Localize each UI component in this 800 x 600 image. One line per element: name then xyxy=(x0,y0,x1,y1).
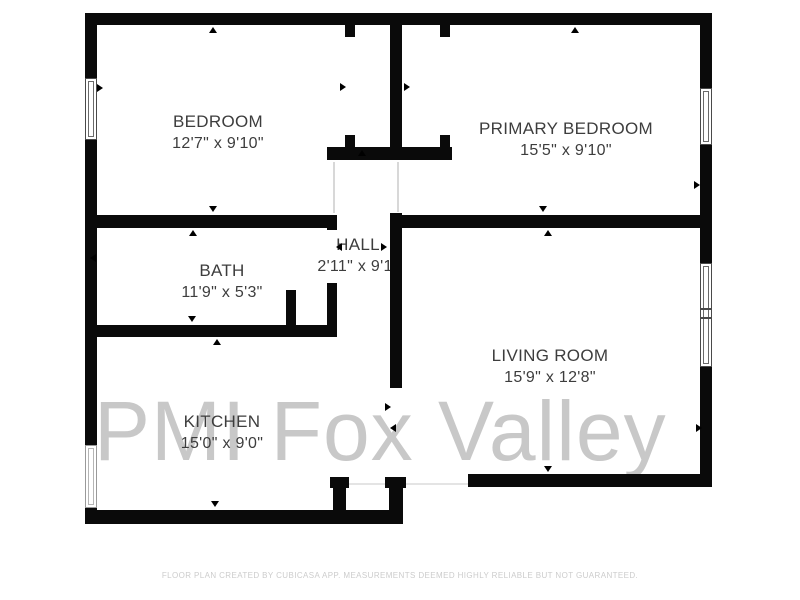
wall-exterior-right-upper xyxy=(700,13,712,88)
window-bedroom-left xyxy=(85,78,97,140)
wall-bath-right-lower xyxy=(327,283,337,337)
wall-tick xyxy=(539,206,547,212)
wall-hall-living-divider xyxy=(390,213,402,388)
wall-primary-living-divider xyxy=(390,215,712,228)
room-name: LIVING ROOM xyxy=(492,345,609,367)
wall-tick xyxy=(544,466,552,472)
room-dimensions: 15'5" x 9'10" xyxy=(479,140,653,162)
room-dimensions: 2'11" x 9'1" xyxy=(317,256,398,278)
wall-tick xyxy=(571,27,579,33)
window-glass xyxy=(703,91,709,142)
wall-closet-left-stub-top xyxy=(345,25,355,37)
wall-exterior-left-middle xyxy=(85,140,97,445)
room-label-kitchen: KITCHEN 15'0" x 9'0" xyxy=(181,411,263,455)
wall-tick xyxy=(209,27,217,33)
wall-exterior-right-middle xyxy=(700,145,712,263)
window-mullion xyxy=(701,308,711,310)
wall-closet-center xyxy=(390,25,402,147)
room-dimensions: 15'0" x 9'0" xyxy=(181,433,263,455)
door-marker xyxy=(696,424,702,432)
room-label-bath: BATH 11'9" x 5'3" xyxy=(181,260,262,304)
wall-tick xyxy=(211,501,219,507)
room-label-bedroom: BEDROOM 12'7" x 9'10" xyxy=(172,111,264,155)
wall-bath-bottom xyxy=(97,325,337,337)
wall-vestibule-right-cap xyxy=(385,477,406,488)
room-name: BATH xyxy=(181,260,262,282)
room-name: KITCHEN xyxy=(181,411,263,433)
door-marker xyxy=(336,243,342,251)
window-glass xyxy=(88,448,94,505)
disclaimer-text: FLOOR PLAN CREATED BY CUBICASA APP. MEAS… xyxy=(0,571,800,580)
room-name: PRIMARY BEDROOM xyxy=(479,118,653,140)
vestibule-threshold-line xyxy=(347,483,389,485)
window-mullion xyxy=(701,317,711,319)
floor-plan: PMI Fox Valley xyxy=(0,0,800,600)
room-dimensions: 15'9" x 12'8" xyxy=(492,367,609,389)
window-glass xyxy=(88,81,94,137)
door-marker xyxy=(381,243,387,251)
door-marker xyxy=(97,84,103,92)
wall-closet-right-stub-top xyxy=(440,25,450,37)
wall-tick xyxy=(213,339,221,345)
door-marker xyxy=(404,83,410,91)
room-label-primary-bedroom: PRIMARY BEDROOM 15'5" x 9'10" xyxy=(479,118,653,162)
wall-vestibule-left-cap xyxy=(330,477,349,488)
wall-exterior-top xyxy=(85,13,712,25)
wall-closet-bottom xyxy=(327,147,452,160)
room-name: BEDROOM xyxy=(172,111,264,133)
wall-tick xyxy=(209,206,217,212)
wall-bottom-living-room xyxy=(468,474,712,487)
wall-bottom-kitchen xyxy=(85,510,403,524)
wall-tick xyxy=(544,230,552,236)
door-marker xyxy=(90,254,96,262)
door-marker xyxy=(385,403,391,411)
wall-exterior-left-upper xyxy=(85,13,97,78)
room-label-living-room: LIVING ROOM 15'9" x 12'8" xyxy=(492,345,609,389)
entry-door-threshold-line xyxy=(403,483,468,485)
door-marker xyxy=(694,181,700,189)
bedroom-door-swing-line xyxy=(333,162,335,213)
window-living-room-right xyxy=(700,263,712,367)
door-marker xyxy=(390,424,396,432)
primary-bedroom-door-swing-line xyxy=(397,162,399,212)
wall-bath-right-stub-top xyxy=(327,215,337,230)
door-marker xyxy=(340,83,346,91)
wall-tick xyxy=(189,230,197,236)
room-dimensions: 11'9" x 5'3" xyxy=(181,282,262,304)
room-dimensions: 12'7" x 9'10" xyxy=(172,133,264,155)
window-primary-bedroom-right xyxy=(700,88,712,145)
window-glass xyxy=(703,266,709,364)
wall-bedroom-bath-divider xyxy=(97,215,337,228)
room-label-hall: HALL 2'11" x 9'1" xyxy=(317,234,398,278)
window-kitchen-left xyxy=(85,445,97,508)
wall-bath-niche-left xyxy=(286,290,296,337)
wall-tick xyxy=(188,316,196,322)
wall-tick xyxy=(358,150,366,156)
